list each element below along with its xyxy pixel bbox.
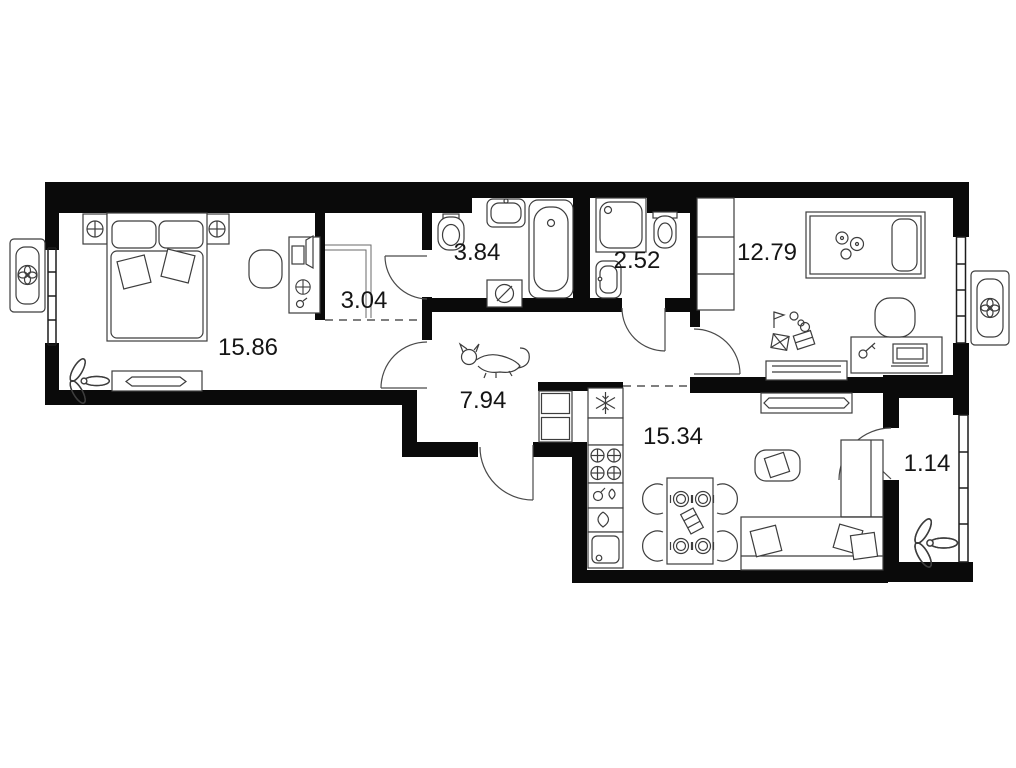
- plant-icon: [912, 517, 958, 570]
- double-bed: [107, 213, 207, 341]
- kids-room-door: [694, 329, 740, 374]
- sink: [487, 199, 525, 227]
- washing-machine: [487, 280, 522, 307]
- bathroom-door: [385, 256, 427, 299]
- toilet-room-door: [622, 308, 665, 351]
- tv-console-living: [761, 393, 852, 413]
- lamp-icon: [296, 280, 310, 294]
- label-kitchen-living: 15.34: [643, 423, 703, 450]
- kids-desk: [851, 337, 942, 373]
- toilet: [653, 212, 677, 248]
- bedroom: [67, 213, 320, 405]
- bathtub: [529, 200, 573, 298]
- floor-plan-page: 15.86 3.04 3.84 2.52 12.79 7.94 15.34 1.…: [0, 0, 1016, 768]
- wardrobe: [697, 198, 734, 310]
- cabinet-with-drop: [588, 508, 623, 532]
- sofa-pillow: [750, 525, 782, 557]
- window-kids-room-right: [957, 237, 966, 343]
- ac-unit-right: [971, 271, 1009, 345]
- floor-plan: 15.86 3.04 3.84 2.52 12.79 7.94 15.34 1.…: [0, 0, 1016, 768]
- single-bed: [806, 212, 925, 278]
- dining-set: [643, 478, 738, 564]
- kids-chair: [875, 298, 915, 337]
- laptop-icon: [891, 344, 929, 366]
- label-balcony: 1.14: [904, 450, 951, 477]
- hall-cabinet: [539, 391, 572, 442]
- label-toilet-room: 2.52: [614, 247, 661, 274]
- label-hallway: 7.94: [460, 387, 507, 414]
- fridge: [588, 388, 623, 418]
- shower: [596, 198, 646, 252]
- mouse-icon: [297, 301, 304, 308]
- label-bedroom: 15.86: [218, 334, 278, 361]
- tv-console-bedroom: [112, 371, 202, 391]
- label-wardrobe: 3.04: [341, 287, 388, 314]
- window-balcony-right: [959, 415, 968, 562]
- ac-unit-left: [10, 239, 45, 312]
- kids-dresser: [766, 361, 847, 380]
- cat-icon: [460, 344, 529, 378]
- window-bedroom-left: [48, 248, 56, 345]
- desk-chair: [249, 250, 282, 288]
- monitor-icon: [292, 246, 304, 264]
- lamp-icon: [87, 221, 103, 237]
- lamp-icon: [209, 221, 225, 237]
- kitchen-sink: [588, 532, 623, 568]
- toys: [771, 312, 815, 350]
- label-kids-room: 12.79: [737, 239, 797, 266]
- kids-room: [697, 198, 942, 380]
- counter-small-appliances: [588, 483, 623, 508]
- kitchen-counter: [588, 418, 623, 445]
- stove: [588, 445, 623, 483]
- tv-icon: [764, 398, 849, 408]
- bedroom-door: [381, 342, 427, 388]
- desk: [289, 236, 320, 313]
- entrance-door: [480, 445, 533, 500]
- pouf: [755, 450, 800, 481]
- sofa-pillow: [850, 532, 877, 559]
- label-bathroom: 3.84: [454, 239, 501, 266]
